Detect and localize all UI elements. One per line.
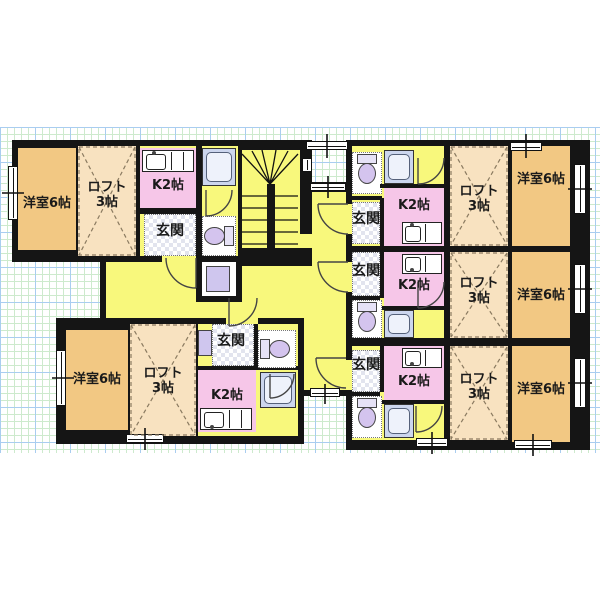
unit-r3-kitchen-label: K2帖: [384, 374, 444, 389]
unit-a-room-label: 洋室6帖: [18, 196, 76, 211]
unit-b-toilet-room: [258, 330, 296, 368]
unit-b-bath-unit: [260, 372, 296, 408]
counter-divider: [425, 256, 426, 272]
staircase-corridor-opening: [300, 234, 312, 248]
unit-r2-room-label: 洋室6帖: [512, 288, 570, 303]
unit-b-kitchen-counter: [200, 408, 252, 430]
unit-r2-window: [574, 264, 586, 314]
unit-b-room-label: 洋室6帖: [66, 372, 128, 387]
unit-r3-bottom-window: [416, 438, 448, 447]
unit-b-entry-opening: [226, 318, 258, 324]
unit-r3-kitchen-counter: [402, 348, 442, 368]
unit-b-loft-label: ロフト 3帖: [130, 366, 196, 396]
unit-b-window: [56, 350, 66, 406]
toilet-icon: [353, 153, 381, 193]
faucet-icon: [210, 425, 214, 429]
sink-icon: [204, 412, 224, 428]
toilet-icon: [203, 217, 235, 255]
stairwell-window: [302, 158, 312, 172]
unit-r2-entrance-label: 玄関: [344, 264, 388, 279]
corridor-entrance-opening: [310, 388, 340, 397]
counter-divider: [171, 152, 172, 170]
unit-r3-window: [574, 358, 586, 408]
counter-divider: [425, 224, 426, 242]
toilet-icon: [353, 397, 381, 437]
unit-a-bath-unit: [202, 148, 236, 186]
unit-r1-entrance-label: 玄関: [344, 212, 388, 227]
faucet-icon: [410, 223, 414, 227]
counter-divider: [229, 410, 230, 428]
unit-r3-toilet-room: [352, 396, 382, 438]
sink-icon: [146, 154, 166, 170]
bathtub-icon: [388, 408, 410, 434]
unit-r2-loft-label: ロフト 3帖: [450, 276, 508, 306]
bathtub-icon: [388, 314, 410, 334]
unit-b-bottom-window: [126, 434, 164, 443]
unit-r3-room-label: 洋室6帖: [512, 382, 570, 397]
unit-r1-kitchen-counter: [402, 222, 442, 244]
unit-r2-kitchen-counter: [402, 254, 442, 274]
unit-r1-window: [574, 164, 586, 214]
unit-a-entry-opening: [162, 256, 196, 264]
unit-r1-loft-label: ロフト 3帖: [450, 184, 508, 214]
unit-r1-bath-unit: [384, 150, 414, 184]
unit-r1-inner-wall: [352, 196, 382, 200]
unit-r3-entrance-label: 玄関: [344, 358, 388, 373]
unit-r3-bottom-window: [514, 440, 552, 449]
unit-r1-top-window: [510, 142, 542, 151]
bathtub-icon: [264, 376, 292, 404]
unit-r1-toilet-room: [352, 152, 382, 194]
washer-icon: [206, 266, 230, 292]
faucet-icon: [410, 268, 414, 272]
unit-b-kitchen-label: K2帖: [198, 388, 256, 403]
bathtub-icon: [206, 152, 232, 182]
counter-divider: [425, 350, 426, 366]
unit-r1-kitchen-label: K2帖: [384, 198, 444, 213]
toilet-icon: [353, 301, 381, 337]
unit-a-loft-label: ロフト 3帖: [78, 180, 136, 210]
toilet-icon: [259, 331, 295, 367]
faucet-icon: [152, 151, 156, 155]
corridor-window: [310, 183, 346, 191]
unit-a-toilet-room: [202, 216, 236, 256]
unit-b-entrance-label: 玄関: [204, 334, 258, 349]
unit-r3-loft-label: ロフト 3帖: [450, 372, 508, 402]
unit-a-entrance-label: 玄関: [142, 224, 198, 239]
bathtub-icon: [388, 154, 410, 180]
unit-r3-bath-unit: [384, 404, 414, 438]
counter-divider: [241, 410, 242, 428]
unit-a-window: [8, 166, 18, 220]
unit-a-kitchen-counter: [142, 150, 194, 172]
unit-r1-room-label: 洋室6帖: [512, 172, 570, 187]
unit-r1-western-room: [512, 146, 570, 246]
sink-icon: [405, 226, 421, 242]
floor-plan-canvas: 洋室6帖 ロフト 3帖 K2帖 玄関 洋室6帖 ロフト 3帖 K2帖 玄関 玄関…: [0, 0, 600, 600]
corridor-right-strip: [312, 192, 346, 390]
faucet-icon: [410, 362, 414, 366]
counter-divider: [183, 152, 184, 170]
unit-r2-toilet-room: [352, 300, 382, 338]
unit-a-kitchen-label: K2帖: [140, 178, 196, 193]
unit-r2-bath-unit: [384, 310, 414, 338]
staircase: [240, 150, 300, 248]
unit-r2-kitchen-label: K2帖: [384, 278, 444, 293]
notch-top-opening: [306, 141, 348, 150]
